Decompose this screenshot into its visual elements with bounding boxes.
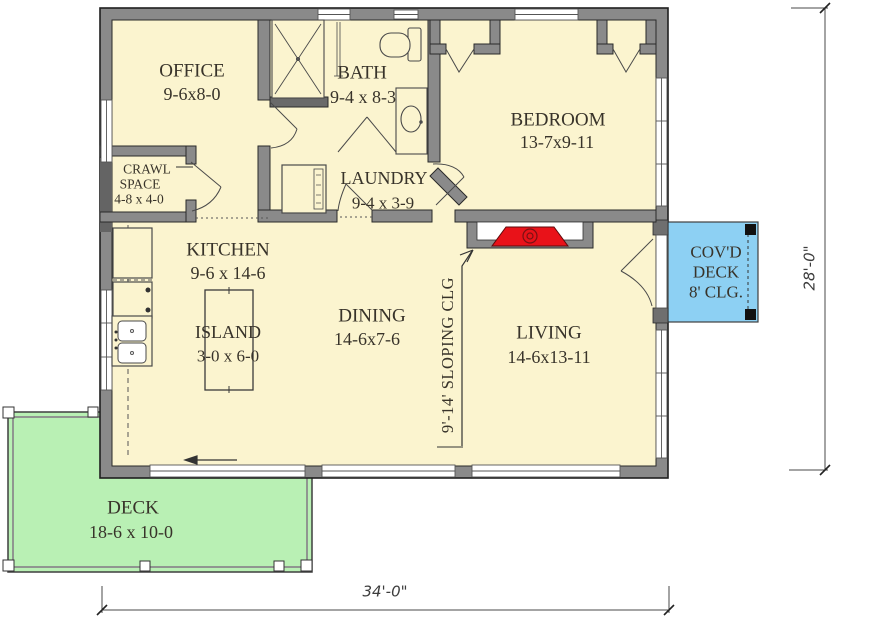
toilet-bowl xyxy=(380,33,410,57)
crawl-label-2: SPACE xyxy=(120,177,161,191)
washer-dryer xyxy=(282,165,326,213)
bath-label: BATH xyxy=(337,64,387,83)
dim-right xyxy=(789,3,830,475)
covered-deck-label-1: COV'D xyxy=(690,244,741,261)
island-label: ISLAND xyxy=(195,323,261,341)
covered-deck-label-3: 8' CLG. xyxy=(689,284,743,301)
laundry-dims: 9-4 x 3-9 xyxy=(352,195,414,212)
dining-dims: 14-6x7-6 xyxy=(334,330,400,348)
living-dims: 14-6x13-11 xyxy=(507,348,590,366)
floor-plan: OFFICE 9-6x8-0 BATH 9-4 x 8-3 CRAWL SPAC… xyxy=(0,0,888,618)
kitchen-label: KITCHEN xyxy=(186,241,269,260)
wood-stove xyxy=(467,222,593,248)
covered-deck-label-2: DECK xyxy=(693,264,739,281)
crawl-label-1: CRAWL xyxy=(123,162,171,176)
refrigerator xyxy=(113,228,152,278)
sloping-ceiling-note: 9'-14' SLOPING CLG xyxy=(440,277,457,433)
deck-post xyxy=(745,309,756,320)
bedroom-label: BEDROOM xyxy=(510,111,605,130)
dining-label: DINING xyxy=(338,307,406,326)
overall-width-dim: 34'-0" xyxy=(362,585,407,600)
crawl-dims: 4-8 x 4-0 xyxy=(114,192,164,206)
bedroom-dims: 13-7x9-11 xyxy=(520,133,594,151)
office-label: OFFICE xyxy=(159,62,224,81)
living-label: LIVING xyxy=(516,324,581,343)
range xyxy=(113,282,152,318)
office-dims: 9-6x8-0 xyxy=(164,85,221,103)
kitchen-dims: 9-6 x 14-6 xyxy=(191,264,266,282)
kitchen-sink xyxy=(112,316,152,366)
deck-dims: 18-6 x 10-0 xyxy=(89,523,173,541)
deck-label: DECK xyxy=(107,499,159,518)
island-dims: 3-0 x 6-0 xyxy=(197,348,259,365)
overall-height-dim: 28'-0" xyxy=(803,245,818,290)
bath-dims: 9-4 x 8-3 xyxy=(330,88,396,106)
deck-post xyxy=(745,224,756,235)
laundry-label: LAUNDRY xyxy=(340,169,427,187)
